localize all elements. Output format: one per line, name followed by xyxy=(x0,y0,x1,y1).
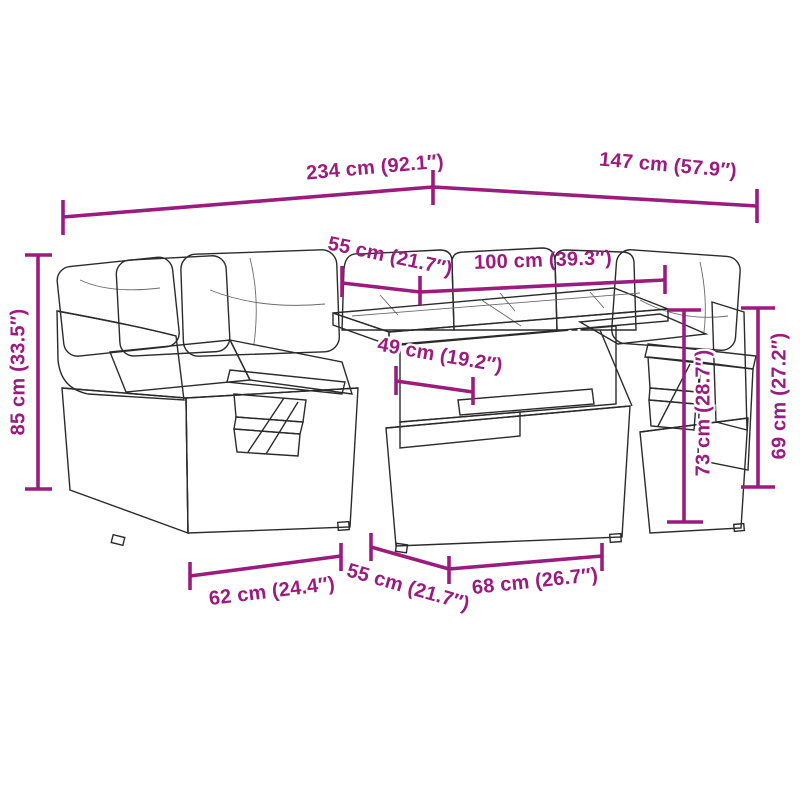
dimension-lines xyxy=(25,170,775,590)
dim-total-depth-line xyxy=(433,187,757,223)
dim-label-arm-height: 69 cm (27.2″) xyxy=(769,333,792,460)
center-table xyxy=(333,288,668,553)
right-sofa xyxy=(580,302,756,533)
dim-total-width-line xyxy=(63,170,433,235)
dim-label-back-height: 85 cm (33.5″) xyxy=(8,309,31,436)
left-sofa xyxy=(57,311,358,545)
furniture-illustration xyxy=(0,0,800,800)
diagram-canvas: 234 cm (92.1″) 147 cm (57.9″) 55 cm (21.… xyxy=(0,0,800,800)
dim-label-table-width: 100 cm (39.3″) xyxy=(474,247,613,275)
dim-label-table-height: 73 cm (28.7″) xyxy=(693,350,716,477)
